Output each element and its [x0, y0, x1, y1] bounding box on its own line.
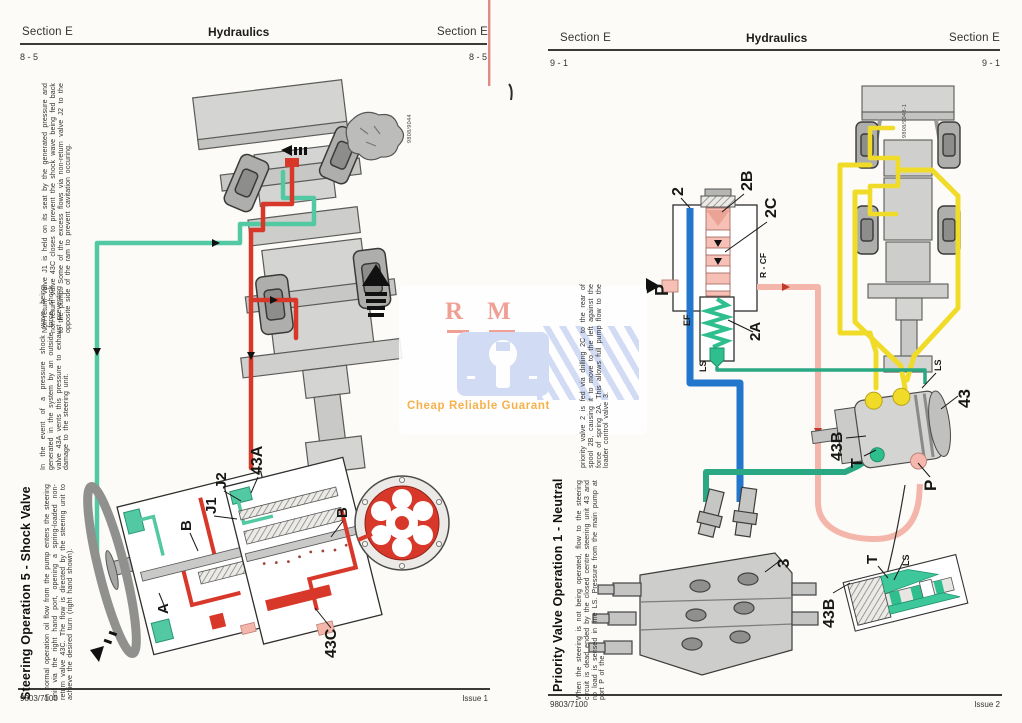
label-unit-t: T [849, 458, 866, 468]
label-line-ls: LS [698, 360, 708, 372]
right-page-number-r: 9 - 1 [958, 58, 1000, 68]
label-inset-t: T [864, 555, 881, 564]
left-header-title: Hydraulics [208, 25, 269, 39]
label-spring-2a: 2A [747, 322, 764, 341]
right-header-title: Hydraulics [746, 31, 807, 45]
label-valve-43a: 43A [249, 445, 266, 475]
right-para-priority: priority valve 2 is fed via drilling 2C … [580, 284, 611, 468]
label-port-b-left: B [178, 520, 195, 531]
left-page-title: Steering Operation 5 - Shock Valve [19, 486, 33, 700]
left-page-number-l: 8 - 5 [20, 52, 38, 62]
scanned-manual-spread: { "watermark": { "letter_r": "R", "lette… [0, 0, 1022, 723]
turn-arrow [90, 631, 117, 662]
left-para-event: In the event of a pressure shock wave be… [40, 286, 71, 470]
label-port-p: P [652, 284, 672, 296]
left-page-number-r: 8 - 5 [445, 52, 487, 62]
left-footer-code: 9803/7100 [20, 694, 58, 703]
watermark-letter-r: R [445, 298, 469, 325]
label-spool-2b: 2B [739, 171, 756, 191]
left-header-section-right: Section E [400, 26, 488, 38]
label-port-rcf: R - CF [758, 253, 768, 278]
watermark-letter-m: M [487, 298, 517, 325]
watermark-letters: RM [445, 298, 517, 326]
right-footer-issue: Issue 2 [952, 700, 1000, 709]
label-unit-ls: LS [933, 359, 943, 371]
figure-priority-valve [646, 189, 757, 367]
label-valve-2: 2 [670, 187, 687, 196]
right-page-title: Priority Valve Operation 1 - Neutral [551, 478, 565, 692]
gerotor-pump [355, 476, 449, 570]
watermark-tagline: Cheap Reliable Guarant [407, 400, 550, 412]
label-valve-j1: J1 [203, 497, 220, 514]
label-unit-43: 43 [955, 389, 974, 408]
label-valve-j2: J2 [213, 472, 230, 489]
right-header-section-left: Section E [560, 32, 611, 44]
figure-code-left: 9808/9044 [407, 114, 413, 143]
right-para-neutral: When the steering is not being operated,… [576, 480, 607, 700]
label-drilling-2c: 2C [763, 197, 780, 218]
label-unit-43b: 43B [829, 432, 846, 461]
right-page-number-l: 9 - 1 [550, 58, 568, 68]
rock [346, 112, 403, 159]
left-header-section-left: Section E [22, 26, 73, 38]
label-valve-3: 3 [774, 559, 793, 568]
figure-code-right: 9808/9048-1 [902, 104, 908, 138]
label-unit-p: P [921, 480, 940, 491]
label-inset-ls: LS [901, 554, 911, 566]
left-footer-issue: Issue 1 [440, 694, 488, 703]
ls-poppet [710, 348, 724, 367]
right-footer-code: 9803/7100 [550, 700, 588, 709]
scan-red-mark [488, 0, 490, 86]
figure-valve-43b-inset: T LS 43B [821, 554, 968, 631]
wrench-icon [457, 332, 549, 401]
figure-loader-control-valve: 3 [589, 487, 818, 675]
right-header-section-right: Section E [912, 32, 1000, 44]
label-port-b-right: B [334, 507, 351, 518]
label-valve-43c: 43C [323, 628, 340, 658]
pen-mark [509, 84, 512, 100]
left-para-normal: In normal operation oil flow from the pu… [44, 484, 75, 700]
label-port-a: A [155, 603, 172, 614]
label-line-ef: EF [682, 314, 692, 326]
label-inset-43b: 43B [821, 599, 838, 628]
